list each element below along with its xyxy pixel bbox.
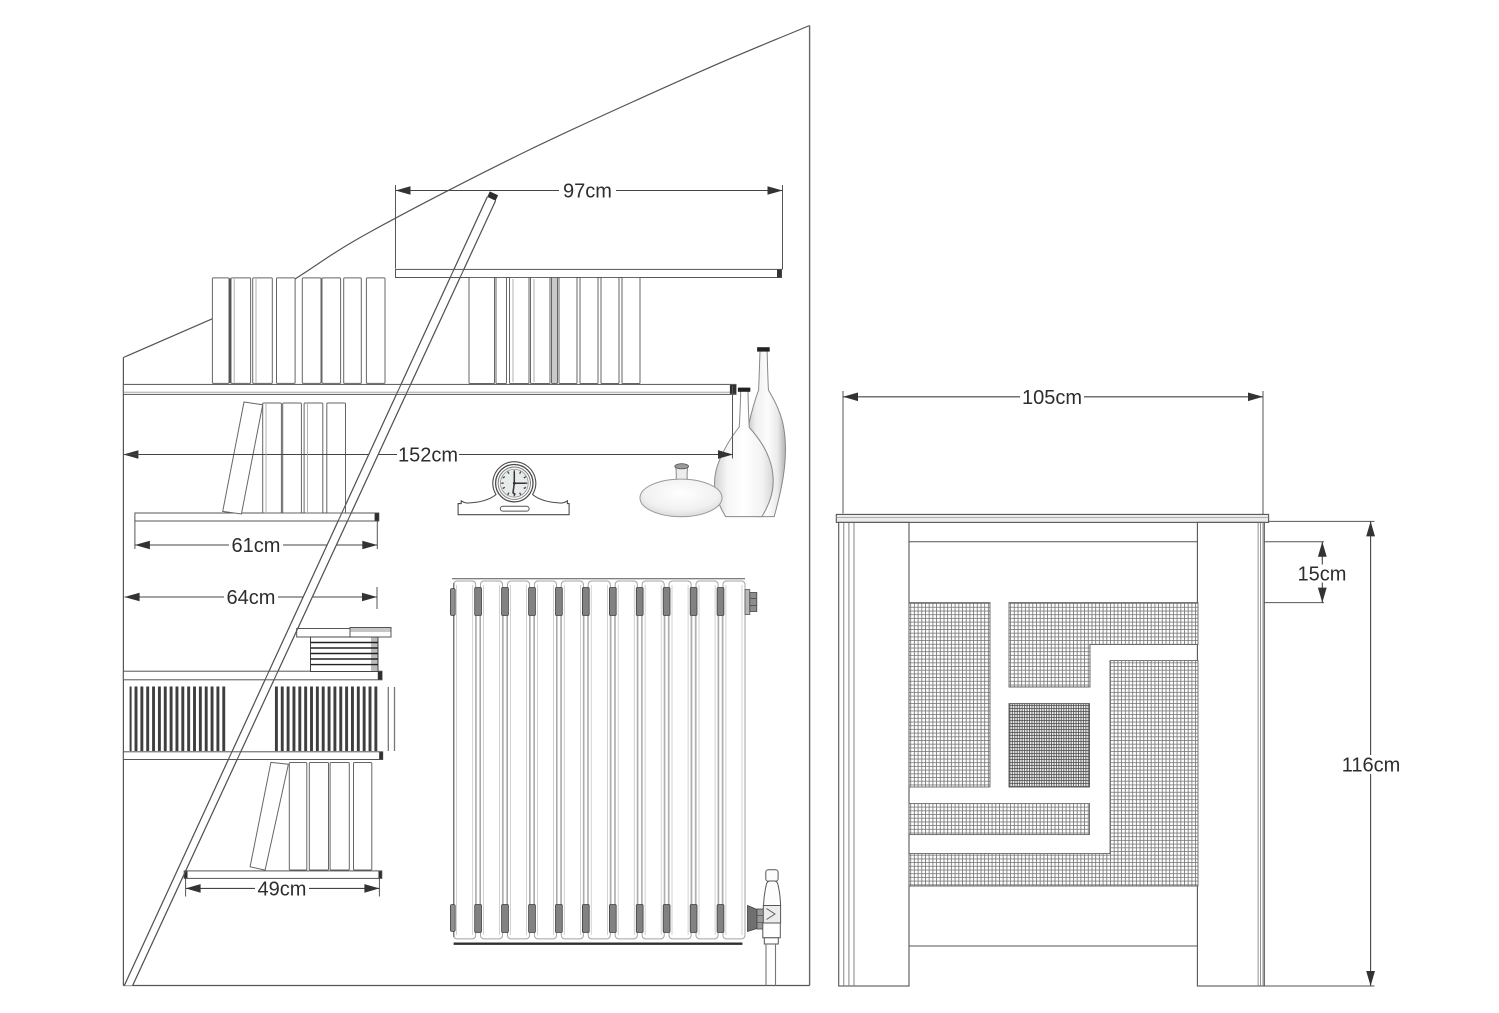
svg-text:49cm: 49cm bbox=[258, 878, 307, 900]
svg-text:15cm: 15cm bbox=[1298, 564, 1347, 586]
svg-text:64cm: 64cm bbox=[227, 587, 276, 609]
svg-text:152cm: 152cm bbox=[398, 445, 458, 467]
svg-text:116cm: 116cm bbox=[1342, 755, 1401, 777]
svg-text:97cm: 97cm bbox=[563, 181, 612, 203]
svg-text:105cm: 105cm bbox=[1022, 387, 1082, 409]
svg-text:61cm: 61cm bbox=[232, 535, 281, 557]
